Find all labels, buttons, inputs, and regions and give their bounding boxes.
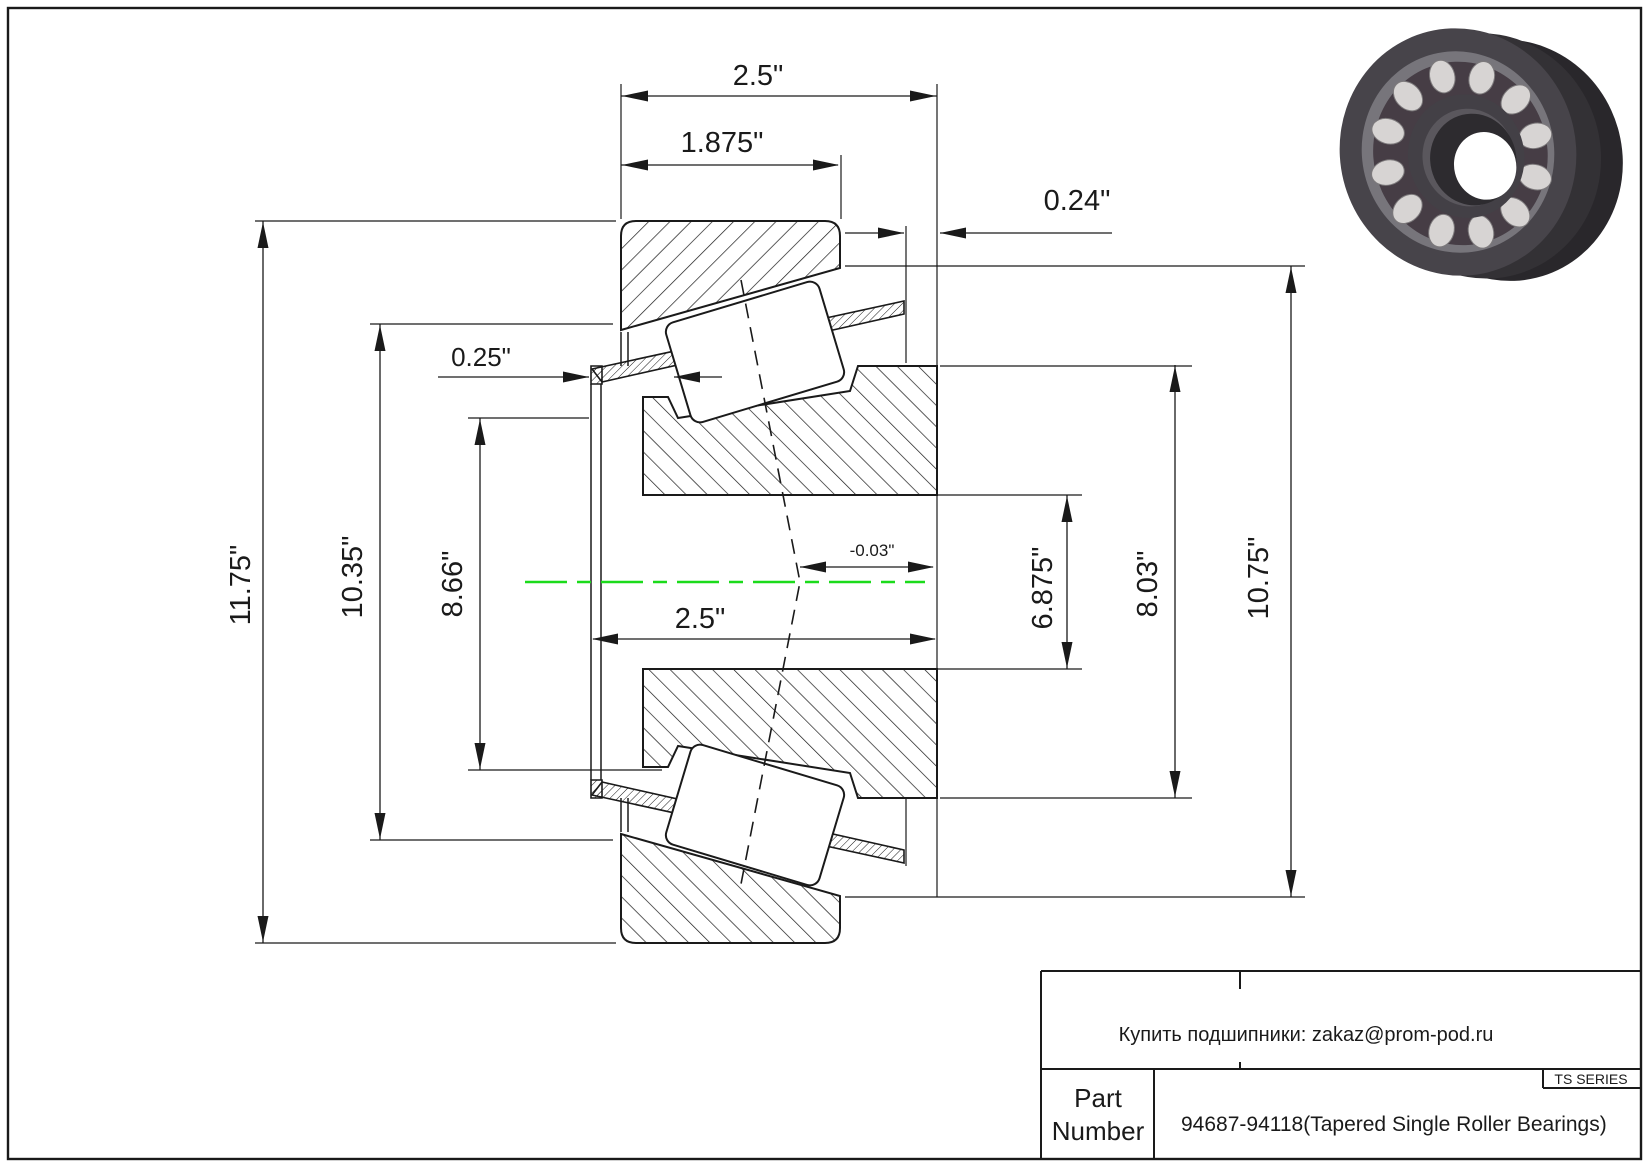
dim-rib-diameter: 8.03" [1132, 551, 1164, 618]
dim-bore-diameter: 6.875" [1027, 547, 1059, 630]
dim-seal-diameter: 8.66" [437, 551, 469, 618]
dim-left-offset: 0.25" [451, 342, 511, 372]
dim-slinger-diameter: 10.75" [1243, 537, 1275, 620]
dim-cone-width: 2.5" [675, 603, 726, 635]
part-label-line2: Number [1052, 1116, 1145, 1146]
title-block-text: Купить подшипники: zakaz@prom-pod.ru TS … [1052, 1024, 1628, 1146]
bearing-3d-render [1314, 0, 1649, 317]
contact-text: Купить подшипники: zakaz@prom-pod.ru [1119, 1024, 1494, 1046]
part-label-line1: Part [1074, 1083, 1122, 1113]
technical-drawing: 2.5" 1.875" 0.24" 0.25" 2.5" -0.03" 11.7… [0, 0, 1649, 1167]
dim-center-offset: -0.03" [850, 541, 895, 560]
series-label: TS SERIES [1554, 1071, 1627, 1087]
dim-overall-width: 2.5" [733, 60, 784, 92]
dim-right-offset: 0.24" [1044, 185, 1111, 217]
part-number-text: 94687-94118(Tapered Single Roller Bearin… [1181, 1113, 1607, 1136]
drawing-page: 2.5" 1.875" 0.24" 0.25" 2.5" -0.03" 11.7… [0, 0, 1649, 1167]
dim-cup-width: 1.875" [681, 127, 764, 159]
dim-flange-diameter: 10.35" [337, 536, 369, 619]
slinger-lip-bottom [591, 780, 602, 798]
dim-outer-diameter: 11.75" [225, 545, 257, 626]
slinger-lip-top [591, 366, 602, 384]
